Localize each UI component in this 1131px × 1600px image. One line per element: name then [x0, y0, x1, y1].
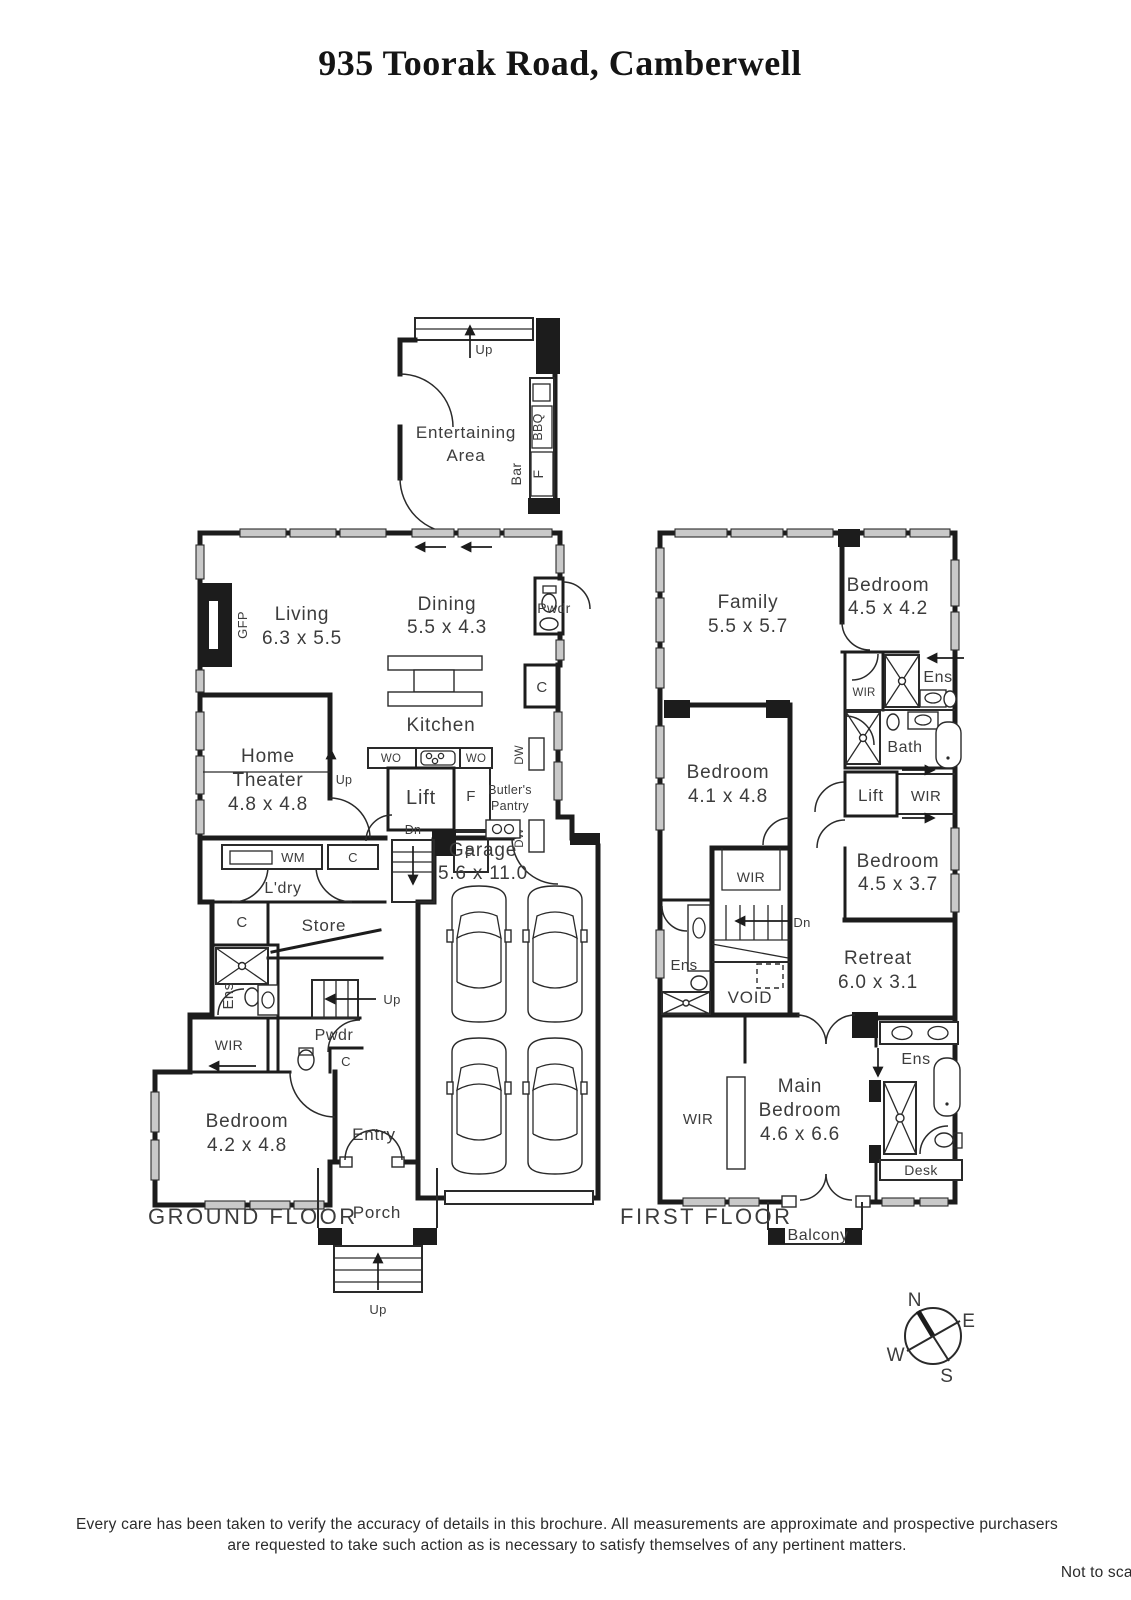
basin-icon: [540, 618, 558, 630]
closet-label: C: [536, 679, 547, 696]
dn-label: Dn: [793, 915, 810, 930]
shower-rose: [860, 735, 867, 742]
garage-label: Garage: [449, 840, 517, 861]
toilet-icon: [298, 1050, 314, 1070]
living-dim: 6.3 x 5.5: [262, 628, 342, 649]
void: VOID: [728, 964, 783, 1007]
wir-label: WIR: [911, 788, 941, 805]
lift-label: Lift: [406, 787, 436, 809]
bedroom4-label: Bedroom: [857, 851, 940, 872]
retreat-dim: 6.0 x 3.1: [838, 972, 918, 993]
car: [523, 886, 587, 1022]
shower-rose: [896, 1114, 904, 1122]
dw-label: DW: [514, 745, 526, 765]
toilet-icon: [691, 976, 707, 990]
ens-label: Ens: [220, 982, 237, 1009]
ground-floor-plan: Up BBQ F Bar Entertaining Area: [148, 318, 600, 1317]
wir-main: WIR: [683, 1077, 745, 1169]
bathroom: Bath: [846, 712, 961, 768]
compass-needle: [918, 1311, 933, 1336]
garage: Garage 5.6 x 11.0: [438, 840, 593, 1204]
skylight: [757, 964, 783, 988]
toilet-icon: [944, 691, 956, 707]
compass: N E W S: [887, 1290, 976, 1387]
main-bedroom-label2: Bedroom: [759, 1100, 842, 1121]
wardrobe: [727, 1077, 745, 1169]
up-label: Up: [475, 342, 492, 357]
wir-ground: WIR: [210, 1037, 256, 1066]
not-to-scale: Not to scale: [1061, 1564, 1131, 1581]
butlers-pantry-label: Butler's: [488, 783, 532, 797]
dining-label: Dining: [418, 594, 477, 615]
compass-s: S: [940, 1366, 953, 1387]
pwdr-label: Pwdr: [315, 1027, 354, 1044]
wir-hall: WIR: [902, 770, 941, 818]
entertaining-area: Up BBQ F Bar Entertaining Area: [400, 318, 560, 533]
fridge-label: F: [466, 788, 476, 805]
ens-main: Ens Desk: [878, 1022, 962, 1180]
garage-door: [445, 1191, 593, 1204]
bedroom3-label: Bedroom: [687, 762, 770, 783]
wir-label: WIR: [853, 687, 876, 699]
home-theater-label2: Theater: [232, 770, 303, 791]
wo-label: WO: [466, 753, 486, 765]
bbq-label: BBQ: [531, 413, 545, 440]
ground-floor-label: GROUND FLOOR: [148, 1204, 358, 1229]
ens-label: Ens: [901, 1051, 930, 1068]
toilet-icon: [887, 714, 899, 730]
living-label: Living: [275, 604, 329, 625]
void-label: VOID: [728, 988, 773, 1007]
bedroom-label: Bedroom: [206, 1111, 289, 1132]
up-label: Up: [383, 992, 400, 1007]
entertaining-label: Entertaining: [416, 423, 516, 442]
home-theater-label: Home: [241, 746, 295, 767]
ens-bed2: WIR Ens: [853, 655, 956, 707]
closet-label: C: [348, 850, 358, 865]
bath-label: Bath: [887, 739, 922, 756]
retreat-label: Retreat: [844, 948, 912, 969]
bedroom2-label: Bedroom: [847, 575, 930, 596]
compass-e: E: [962, 1311, 975, 1332]
ens-void: Ens: [662, 905, 710, 1014]
vanity: [258, 985, 278, 1015]
wir-label: WIR: [737, 869, 765, 885]
ensuite-ground: Ens: [216, 948, 278, 1015]
wo-label: WO: [381, 753, 401, 765]
compass-n: N: [908, 1290, 923, 1311]
first-floor-label: FIRST FLOOR: [620, 1204, 793, 1229]
ens-label: Ens: [670, 957, 697, 974]
toilet-icon: [245, 988, 259, 1006]
garage-dim: 5.6 x 11.0: [438, 863, 528, 884]
bedroom3-dim: 4.1 x 4.8: [688, 786, 768, 807]
island-bench: [388, 692, 482, 706]
stairs-first: Dn: [712, 905, 811, 958]
porch-label: Porch: [353, 1203, 401, 1222]
up-label: Up: [336, 773, 353, 787]
wir-label: WIR: [215, 1037, 243, 1053]
island-bench: [388, 656, 482, 670]
floorplan-page: 935 Toorak Road, Camberwell Up BBQ F Bar…: [0, 0, 1131, 1600]
shower-rose: [683, 1000, 689, 1006]
closet-label: C: [341, 1054, 351, 1069]
car: [447, 886, 511, 1022]
family-label: Family: [718, 592, 779, 613]
bedroom4-dim: 4.5 x 3.7: [858, 874, 938, 895]
toilet-icon: [543, 586, 556, 593]
store-label: Store: [302, 916, 347, 935]
kitchen-label: Kitchen: [407, 715, 476, 736]
fridge-label: F: [530, 470, 546, 479]
dn-label: Dn: [405, 823, 422, 837]
dishwasher: [529, 820, 544, 852]
toilet-icon: [935, 1133, 953, 1147]
main-bedroom-label: Main: [778, 1076, 822, 1097]
laundry: WM C L'dry: [222, 845, 378, 897]
shower-rose: [899, 678, 906, 685]
gfp-label: GFP: [235, 611, 250, 639]
bathtub: [936, 722, 961, 768]
dishwasher: [529, 738, 544, 770]
desk-label: Desk: [904, 1162, 938, 1178]
closet-label: C: [236, 914, 247, 931]
wm-label: WM: [281, 850, 305, 865]
laundry-label: L'dry: [264, 880, 301, 897]
wir-label: WIR: [683, 1111, 713, 1128]
shower-rose: [239, 963, 246, 970]
home-theater-dim: 4.8 x 4.8: [228, 794, 308, 815]
disclaimer-line1: Every care has been taken to verify the …: [76, 1516, 1058, 1533]
main-bedroom-dim: 4.6 x 6.6: [760, 1124, 840, 1145]
butlers-pantry-label2: Pantry: [491, 799, 529, 813]
footer: Every care has been taken to verify the …: [76, 1516, 1131, 1581]
balcony-label: Balcony: [787, 1227, 848, 1244]
compass-w: W: [887, 1345, 906, 1366]
dining-dim: 5.5 x 4.3: [407, 617, 487, 638]
pwdr-label: Pwdr: [537, 600, 571, 616]
car: [447, 1038, 511, 1174]
family-dim: 5.5 x 5.7: [708, 616, 788, 637]
car: [523, 1038, 587, 1174]
island-bench: [414, 670, 454, 692]
ens-label: Ens: [923, 669, 952, 686]
disclaimer-line2: are requested to take such action as is …: [227, 1537, 906, 1554]
first-floor-plan: Family 5.5 x 5.7 Bedroom 4.5 x 4.2 WIR E…: [620, 529, 964, 1244]
bar-label: Bar: [508, 463, 524, 486]
bedroom2-dim: 4.5 x 4.2: [848, 598, 928, 619]
entertaining-label2: Area: [446, 446, 485, 465]
powder-room-upper: Pwdr: [537, 586, 571, 630]
pantry-cooktop: [486, 820, 520, 838]
page-title: 935 Toorak Road, Camberwell: [318, 43, 802, 83]
up-label: Up: [369, 1302, 386, 1317]
lift-label: Lift: [858, 786, 884, 805]
gas-fireplace: GFP: [202, 583, 250, 667]
bedroom-dim: 4.2 x 4.8: [207, 1135, 287, 1156]
bathtub: [934, 1058, 960, 1116]
wir-bed3: WIR: [722, 848, 780, 890]
stairs-up-ground: Up: [312, 980, 401, 1018]
